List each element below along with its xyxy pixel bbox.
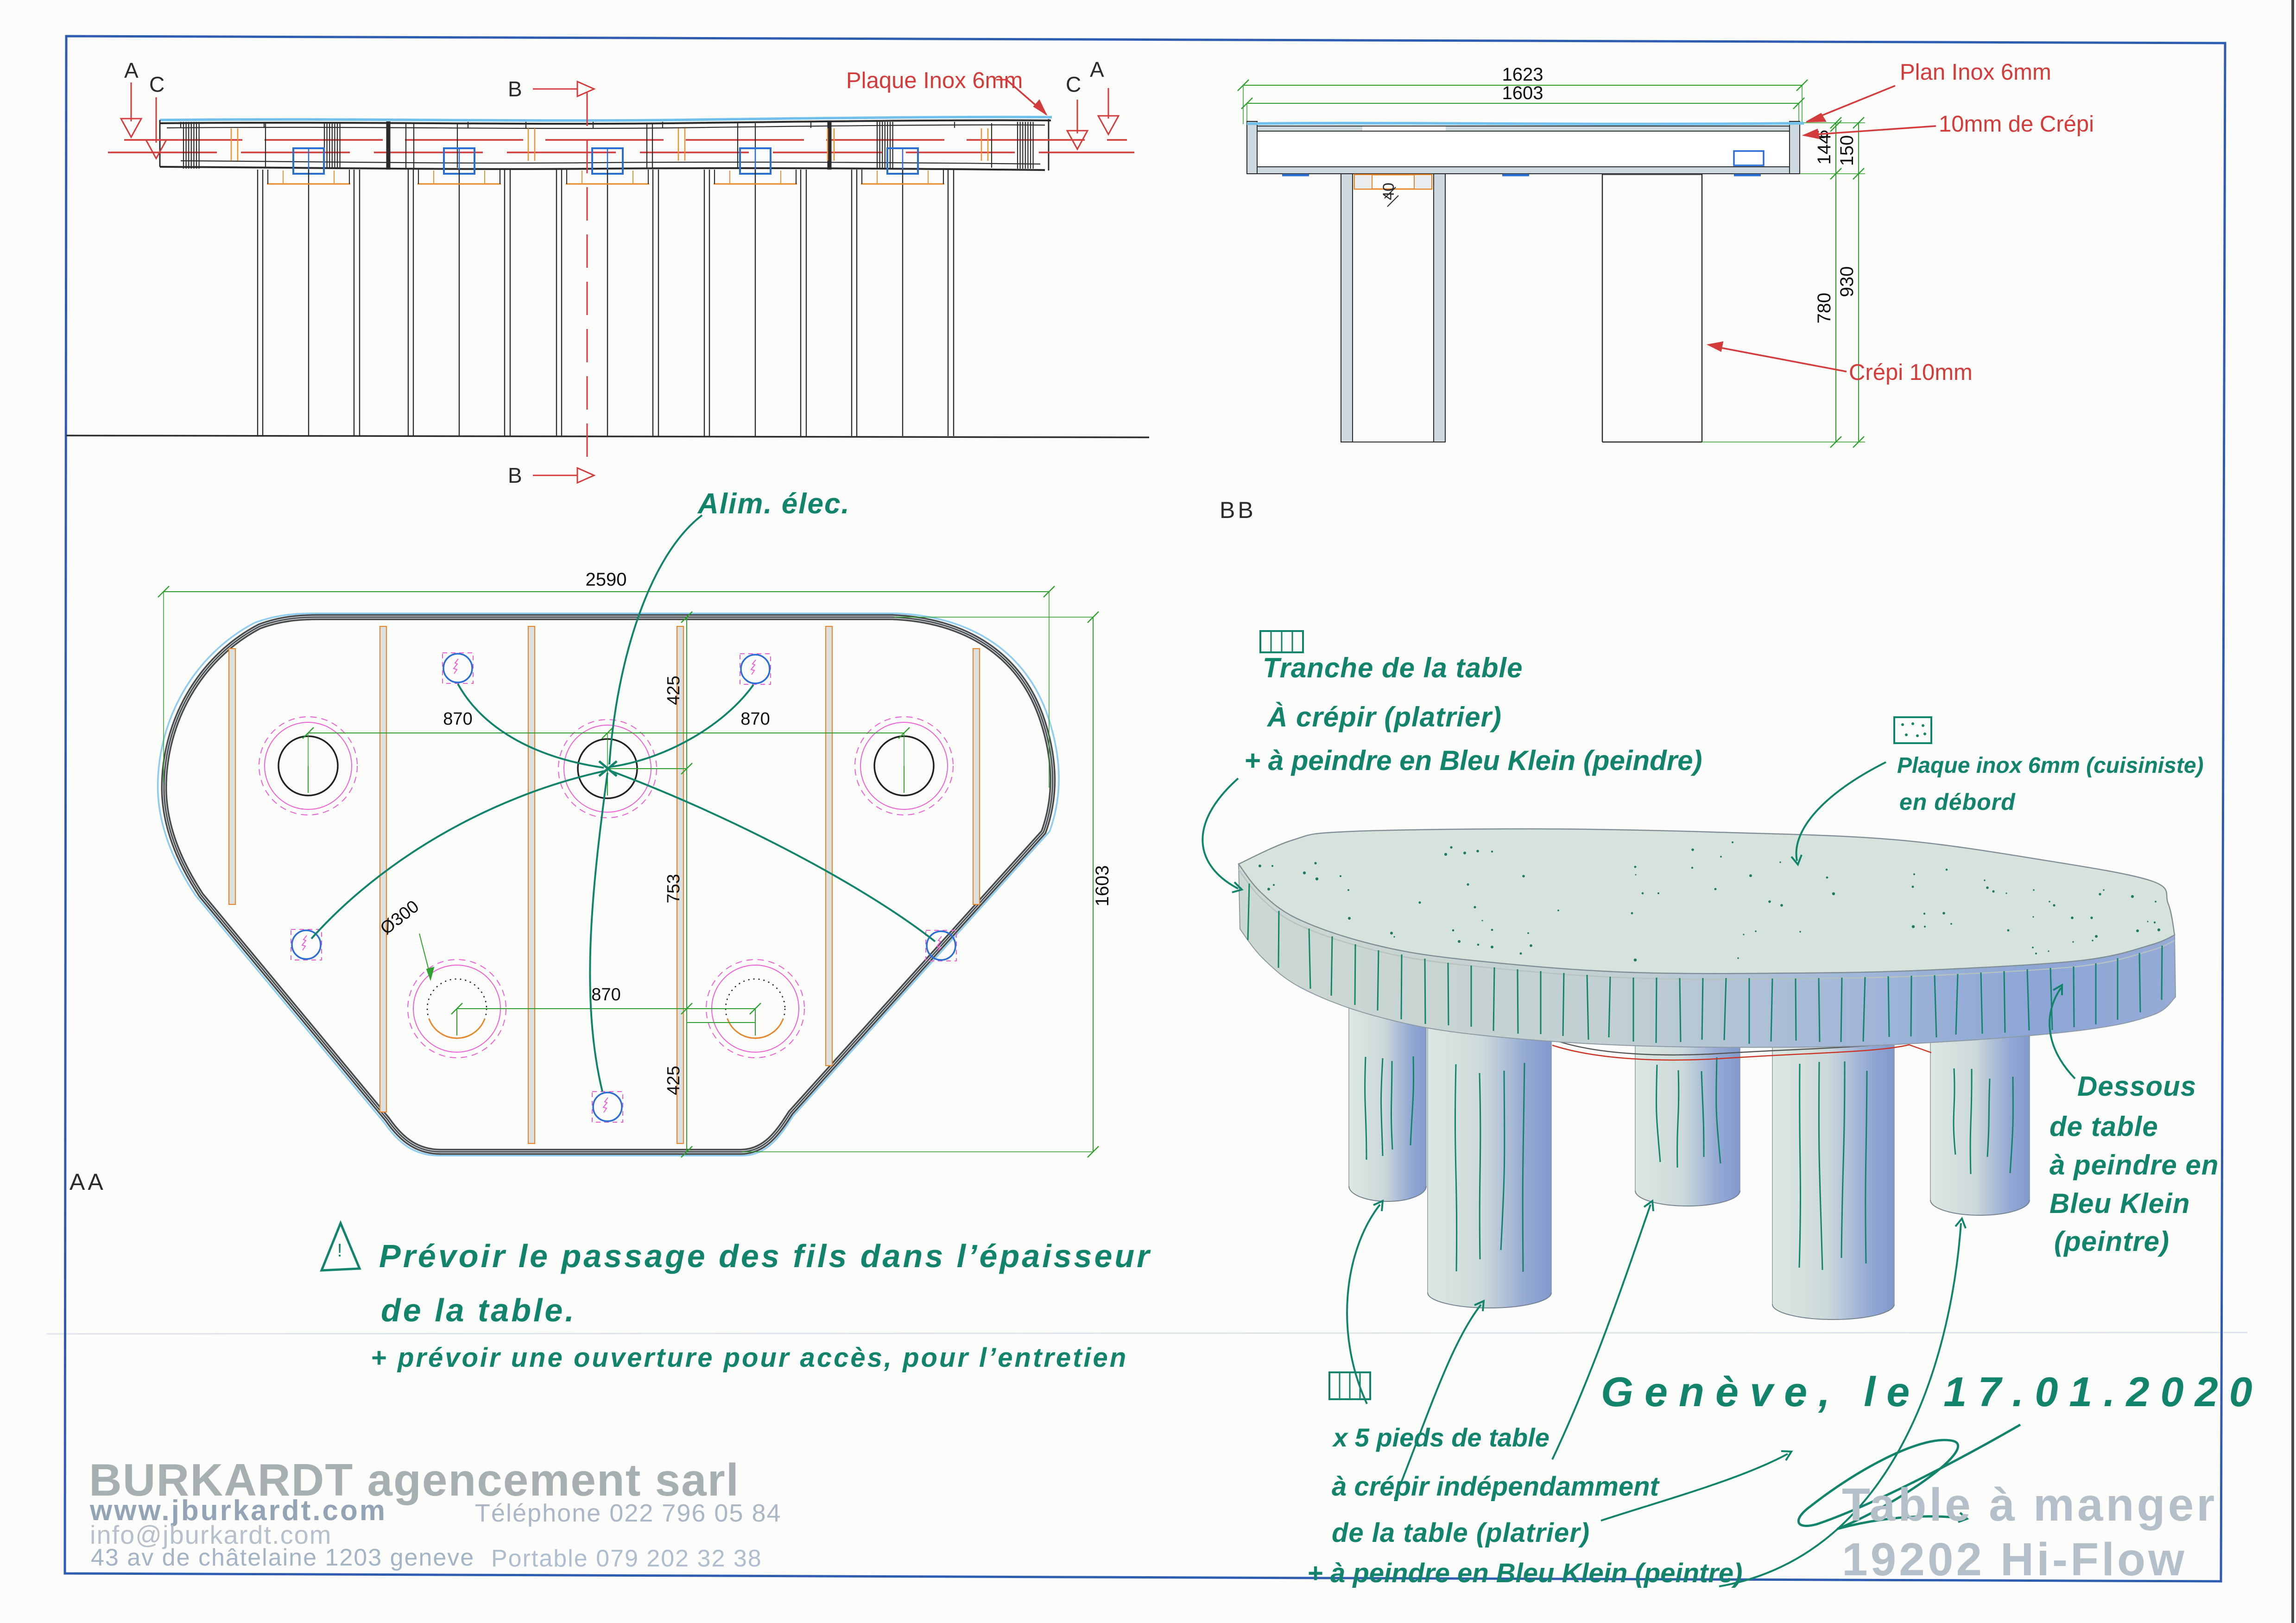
svg-text:(peintre): (peintre) bbox=[2054, 1226, 2169, 1257]
svg-text:A: A bbox=[1090, 57, 1104, 82]
svg-text:C: C bbox=[1066, 72, 1081, 96]
svg-text:Plan Inox 6mm: Plan Inox 6mm bbox=[1900, 60, 2051, 85]
svg-text:à crépir indépendamment: à crépir indépendamment bbox=[1332, 1471, 1660, 1502]
svg-text:Prévoir le passage des fils da: Prévoir le passage des fils dans l’épais… bbox=[379, 1238, 1151, 1274]
svg-text:+ à peindre en Bleu Klein (pei: + à peindre en Bleu Klein (peintre) bbox=[1307, 1558, 1742, 1588]
svg-text:BB: BB bbox=[1220, 497, 1256, 523]
svg-text:à peindre en: à peindre en bbox=[2049, 1149, 2219, 1181]
svg-text:1623: 1623 bbox=[1502, 64, 1543, 85]
svg-text:19202 Hi-Flow: 19202 Hi-Flow bbox=[1842, 1534, 2187, 1585]
svg-text:x 5 pieds de table: x 5 pieds de table bbox=[1332, 1423, 1550, 1452]
svg-text:425: 425 bbox=[664, 1066, 683, 1095]
svg-text:B: B bbox=[508, 463, 522, 487]
svg-text:Crépi 10mm: Crépi 10mm bbox=[1849, 360, 1973, 385]
svg-text:1603: 1603 bbox=[1502, 83, 1543, 103]
svg-text:10mm de Crépi: 10mm de Crépi bbox=[1939, 112, 2094, 137]
svg-text:Tranche de la table: Tranche de la table bbox=[1263, 652, 1523, 683]
svg-text:+ à peindre en Bleu Klein (pei: + à peindre en Bleu Klein (peindre) bbox=[1244, 745, 1702, 776]
svg-text:1603: 1603 bbox=[1092, 865, 1113, 907]
svg-text:C: C bbox=[149, 72, 164, 96]
svg-text:150: 150 bbox=[1837, 135, 1857, 166]
svg-text:Plaque inox 6mm (cuisiniste): Plaque inox 6mm (cuisiniste) bbox=[1897, 753, 2204, 778]
svg-text:Plaque Inox 6mm: Plaque Inox 6mm bbox=[846, 68, 1023, 93]
svg-text:780: 780 bbox=[1814, 293, 1834, 324]
svg-text:870: 870 bbox=[591, 985, 620, 1004]
svg-text:de la table.: de la table. bbox=[381, 1292, 576, 1328]
svg-text:425: 425 bbox=[664, 676, 683, 705]
svg-text:Dessous: Dessous bbox=[2077, 1071, 2196, 1102]
svg-text:43 av de châtelaine 1203 genev: 43 av de châtelaine 1203 geneve bbox=[91, 1544, 474, 1571]
svg-text:870: 870 bbox=[443, 709, 472, 729]
svg-text:B: B bbox=[508, 77, 522, 101]
svg-text:753: 753 bbox=[664, 874, 683, 903]
svg-text:!: ! bbox=[337, 1240, 342, 1261]
svg-text:À crépir (platrier): À crépir (platrier) bbox=[1266, 701, 1502, 733]
svg-text:Bleu Klein: Bleu Klein bbox=[2049, 1188, 2190, 1219]
svg-text:AA: AA bbox=[70, 1169, 106, 1195]
svg-text:Genève, le 17.01.2020: Genève, le 17.01.2020 bbox=[1601, 1369, 2264, 1415]
svg-text:Table à manger: Table à manger bbox=[1842, 1479, 2217, 1531]
svg-text:40: 40 bbox=[1380, 183, 1398, 200]
svg-text:A: A bbox=[124, 58, 139, 82]
svg-text:en débord: en débord bbox=[1899, 789, 2016, 815]
svg-text:Téléphone 022 796 05 84: Téléphone 022 796 05 84 bbox=[475, 1499, 782, 1527]
svg-text:Portable 079 202 32 38: Portable 079 202 32 38 bbox=[491, 1545, 762, 1572]
svg-text:de table: de table bbox=[2049, 1111, 2158, 1142]
svg-text:de la table (platrier): de la table (platrier) bbox=[1332, 1518, 1590, 1548]
svg-text:+ prévoir une ouverture pour a: + prévoir une ouverture pour accès, pour… bbox=[371, 1343, 1128, 1373]
svg-text:930: 930 bbox=[1837, 266, 1857, 297]
svg-text:2590: 2590 bbox=[586, 569, 627, 590]
svg-text:870: 870 bbox=[740, 709, 770, 729]
svg-text:Alim. élec.: Alim. élec. bbox=[697, 488, 850, 520]
